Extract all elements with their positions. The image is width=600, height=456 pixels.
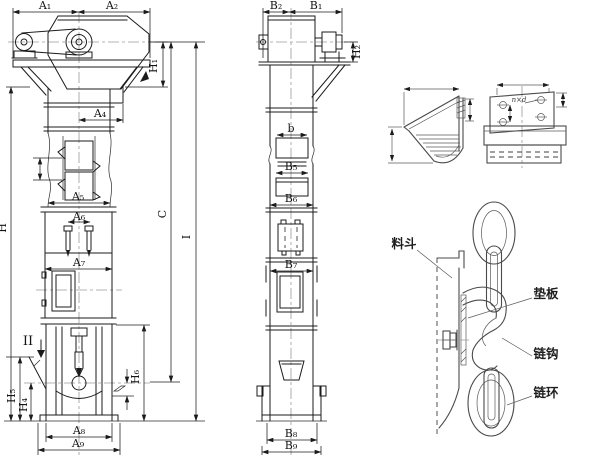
plate-lower-body: [487, 145, 561, 163]
dim-b5-label: B₅: [285, 160, 298, 173]
dim-b-label: b: [287, 122, 294, 135]
head-side: [259, 16, 350, 101]
front-view-dimensions: A₁ A₂ H₁ A₄ A₅ A₆ A₇ A₈ A₉: [0, 0, 168, 455]
detail-bucket-profile: [388, 89, 474, 163]
feed-chute: [29, 357, 46, 389]
trunk-front: [33, 89, 116, 324]
dim-a9-label: A₉: [71, 437, 85, 450]
trunk-side: [256, 65, 327, 421]
chain-links: [463, 202, 515, 436]
break-line-left: [48, 133, 51, 207]
bolt-and-nuts: [438, 330, 472, 350]
chain-anchor-studs: [64, 226, 93, 257]
hook-callout-leader: [502, 338, 532, 356]
dim-a7-label: A₇: [72, 256, 86, 269]
dim-h1-label: H₁: [147, 59, 160, 73]
boot-side: [256, 361, 327, 421]
dim-a5-label: A₅: [71, 190, 84, 203]
drive-unit: [12, 29, 92, 58]
dim-h-label: H: [0, 223, 9, 233]
dim-b2-label: B₂: [270, 0, 283, 12]
bucket-rear-view: [278, 220, 303, 255]
dim-a1-label: A₁: [38, 0, 51, 12]
dim-a6-label: A₆: [72, 210, 86, 223]
dim-a4-label: A₄: [93, 107, 107, 120]
dim-a8-label: A₈: [72, 424, 86, 437]
inspection-door-front: [42, 271, 75, 311]
dim-h6-label: H₆: [129, 369, 142, 384]
dim-i-label: I: [180, 235, 193, 239]
head-platform: [13, 60, 150, 95]
bucket-elevator-drawing: A₁ A₂ H₁ A₄ A₅ A₆ A₇ A₈ A₉: [0, 0, 600, 456]
bucket-callout-leader: [417, 250, 452, 278]
plate-holes-count-label: n×d: [512, 96, 527, 104]
top-chain-ring: [473, 202, 515, 264]
hook-callout-label: 链钩: [533, 346, 558, 361]
dim-b6-label: B₆: [285, 192, 298, 205]
boot-front: [4, 324, 205, 421]
detail-back-plate: n×d: [484, 85, 567, 168]
front-view: A₁ A₂ H₁ A₄ A₅ A₆ A₇ A₈ A₉: [0, 0, 205, 455]
bucket-pitch-dim: [33, 158, 62, 180]
dim-b9-label: B₉: [285, 439, 298, 452]
section-ii-marker: II: [23, 334, 33, 349]
dim-c-label: C: [156, 210, 169, 218]
dim-a2-label: A₂: [105, 0, 118, 12]
between-view-dimensions: C I: [150, 42, 205, 421]
bucket-callout-label: 料斗: [391, 236, 417, 251]
pad-plate: [461, 295, 466, 365]
bucket-outline: [404, 96, 465, 163]
ring-callout-label: 链环: [533, 385, 559, 400]
plate-lip-band: [484, 126, 566, 145]
elevator-drawing-page: A₁ A₂ H₁ A₄ A₅ A₆ A₇ A₈ A₉: [0, 0, 600, 456]
side-view: B₂ B₁ H₂ b B₅ B₆ B₇ B₈ B₉: [256, 0, 363, 455]
plate-label-leader: [525, 100, 538, 103]
dim-b1-label: B₁: [310, 0, 323, 12]
inspection-door-side: [266, 266, 317, 316]
dim-h4-label: H₄: [17, 397, 30, 412]
side-flanges: [266, 108, 317, 330]
break-line-right: [109, 133, 112, 207]
dim-h2-label: H₂: [350, 45, 363, 59]
chain-hook: [463, 287, 506, 370]
pad-callout-leader: [468, 298, 532, 318]
pad-callout-label: 垫板: [533, 286, 559, 301]
dim-b7-label: B₇: [285, 258, 298, 271]
detail-chain-attachment: 料斗 垫板 链钩 链环: [391, 202, 559, 436]
next-link-edge: [484, 368, 499, 428]
section-ii-arrow: [37, 350, 45, 358]
ring-callout-leader: [507, 396, 532, 405]
